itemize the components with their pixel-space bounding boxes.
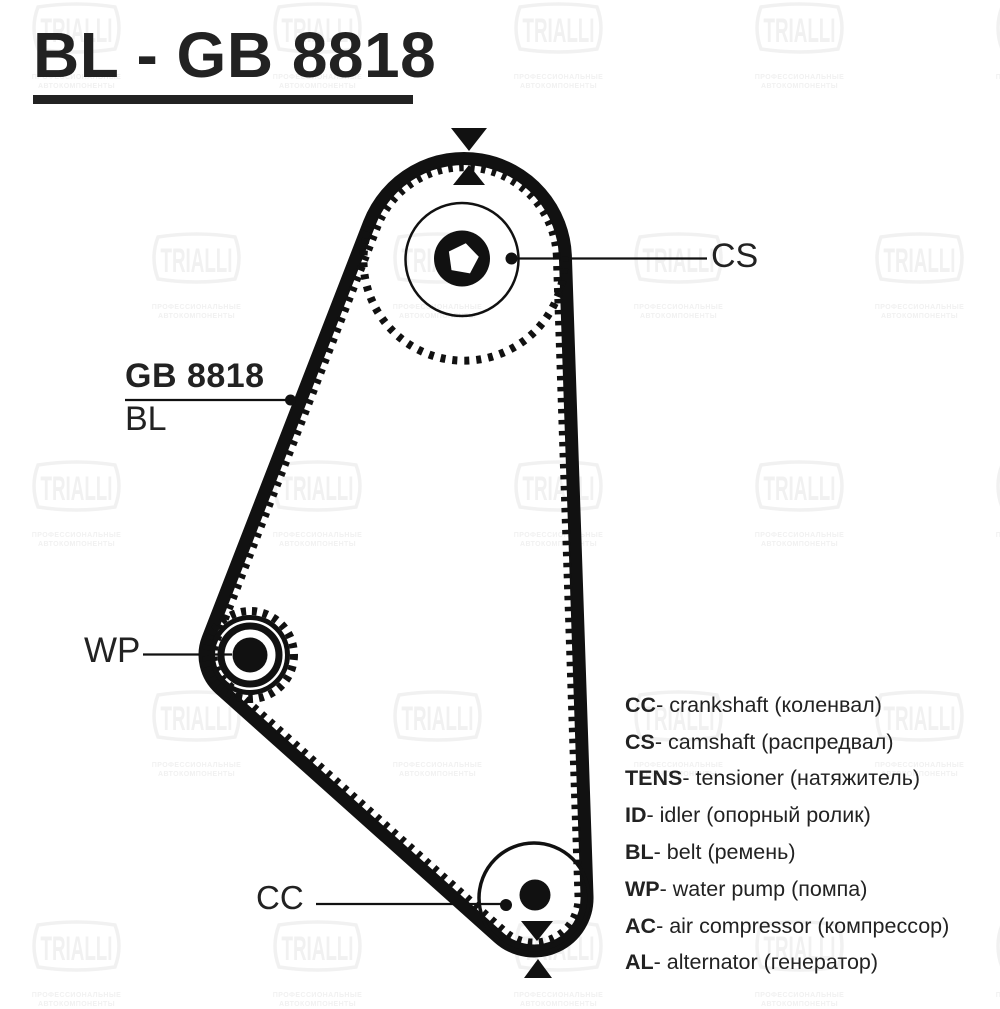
legend-abbr: CC [625, 693, 656, 718]
water-pump-hub [233, 638, 268, 673]
timing-belt-teeth [214, 167, 579, 942]
belt-part-number-label: GB 8818 [125, 359, 265, 393]
belt-abbr-label: BL [125, 402, 167, 436]
legend-row: ID - idler (опорный ролик) [625, 797, 949, 834]
water-pump-label: WP [84, 633, 140, 668]
page: { "page": { "title": "BL - GB 8818", "bg… [0, 0, 1000, 1000]
legend-row: TENS - tensioner (натяжитель) [625, 761, 949, 798]
timing-mark-arrow-up [453, 165, 485, 185]
legend-abbr: WP [625, 877, 660, 902]
crankshaft-mark-arrow-up [524, 959, 552, 978]
legend-row: CC - crankshaft (коленвал) [625, 687, 949, 724]
legend-row: AC - air compressor (компрессор) [625, 908, 949, 945]
legend-row: WP - water pump (помпа) [625, 871, 949, 908]
crankshaft-pointer-dot [500, 899, 512, 911]
crankshaft-mark-arrow-down [521, 921, 553, 941]
page-title: BL - GB 8818 [33, 23, 436, 87]
crankshaft-label: CC [256, 881, 304, 914]
legend-desc: - air compressor (компрессор) [656, 914, 949, 939]
legend-desc: - belt (ремень) [654, 840, 796, 865]
legend-abbr: AL [625, 950, 654, 975]
camshaft-pointer-dot [506, 253, 518, 265]
legend-row: BL - belt (ремень) [625, 834, 949, 871]
legend-desc: - tensioner (натяжитель) [682, 766, 920, 791]
legend-desc: - alternator (генератор) [654, 950, 878, 975]
legend: CC - crankshaft (коленвал)CS - camshaft … [625, 687, 949, 981]
legend-row: AL - alternator (генератор) [625, 945, 949, 982]
legend-abbr: BL [625, 840, 654, 865]
legend-abbr: CS [625, 730, 655, 755]
title-underline [33, 95, 413, 104]
legend-desc: - crankshaft (коленвал) [656, 693, 882, 718]
crankshaft-hub [520, 880, 551, 911]
legend-abbr: TENS [625, 766, 682, 791]
timing-mark-arrow-down [451, 128, 487, 151]
legend-desc: - water pump (помпа) [660, 877, 868, 902]
legend-desc: - idler (опорный ролик) [647, 803, 871, 828]
legend-abbr: AC [625, 914, 656, 939]
camshaft-label: CS [711, 239, 758, 273]
legend-row: CS - camshaft (распредвал) [625, 724, 949, 761]
legend-desc: - camshaft (распредвал) [655, 730, 894, 755]
crankshaft-pulley [479, 843, 589, 978]
legend-abbr: ID [625, 803, 647, 828]
belt-pointer-dot [285, 395, 296, 406]
